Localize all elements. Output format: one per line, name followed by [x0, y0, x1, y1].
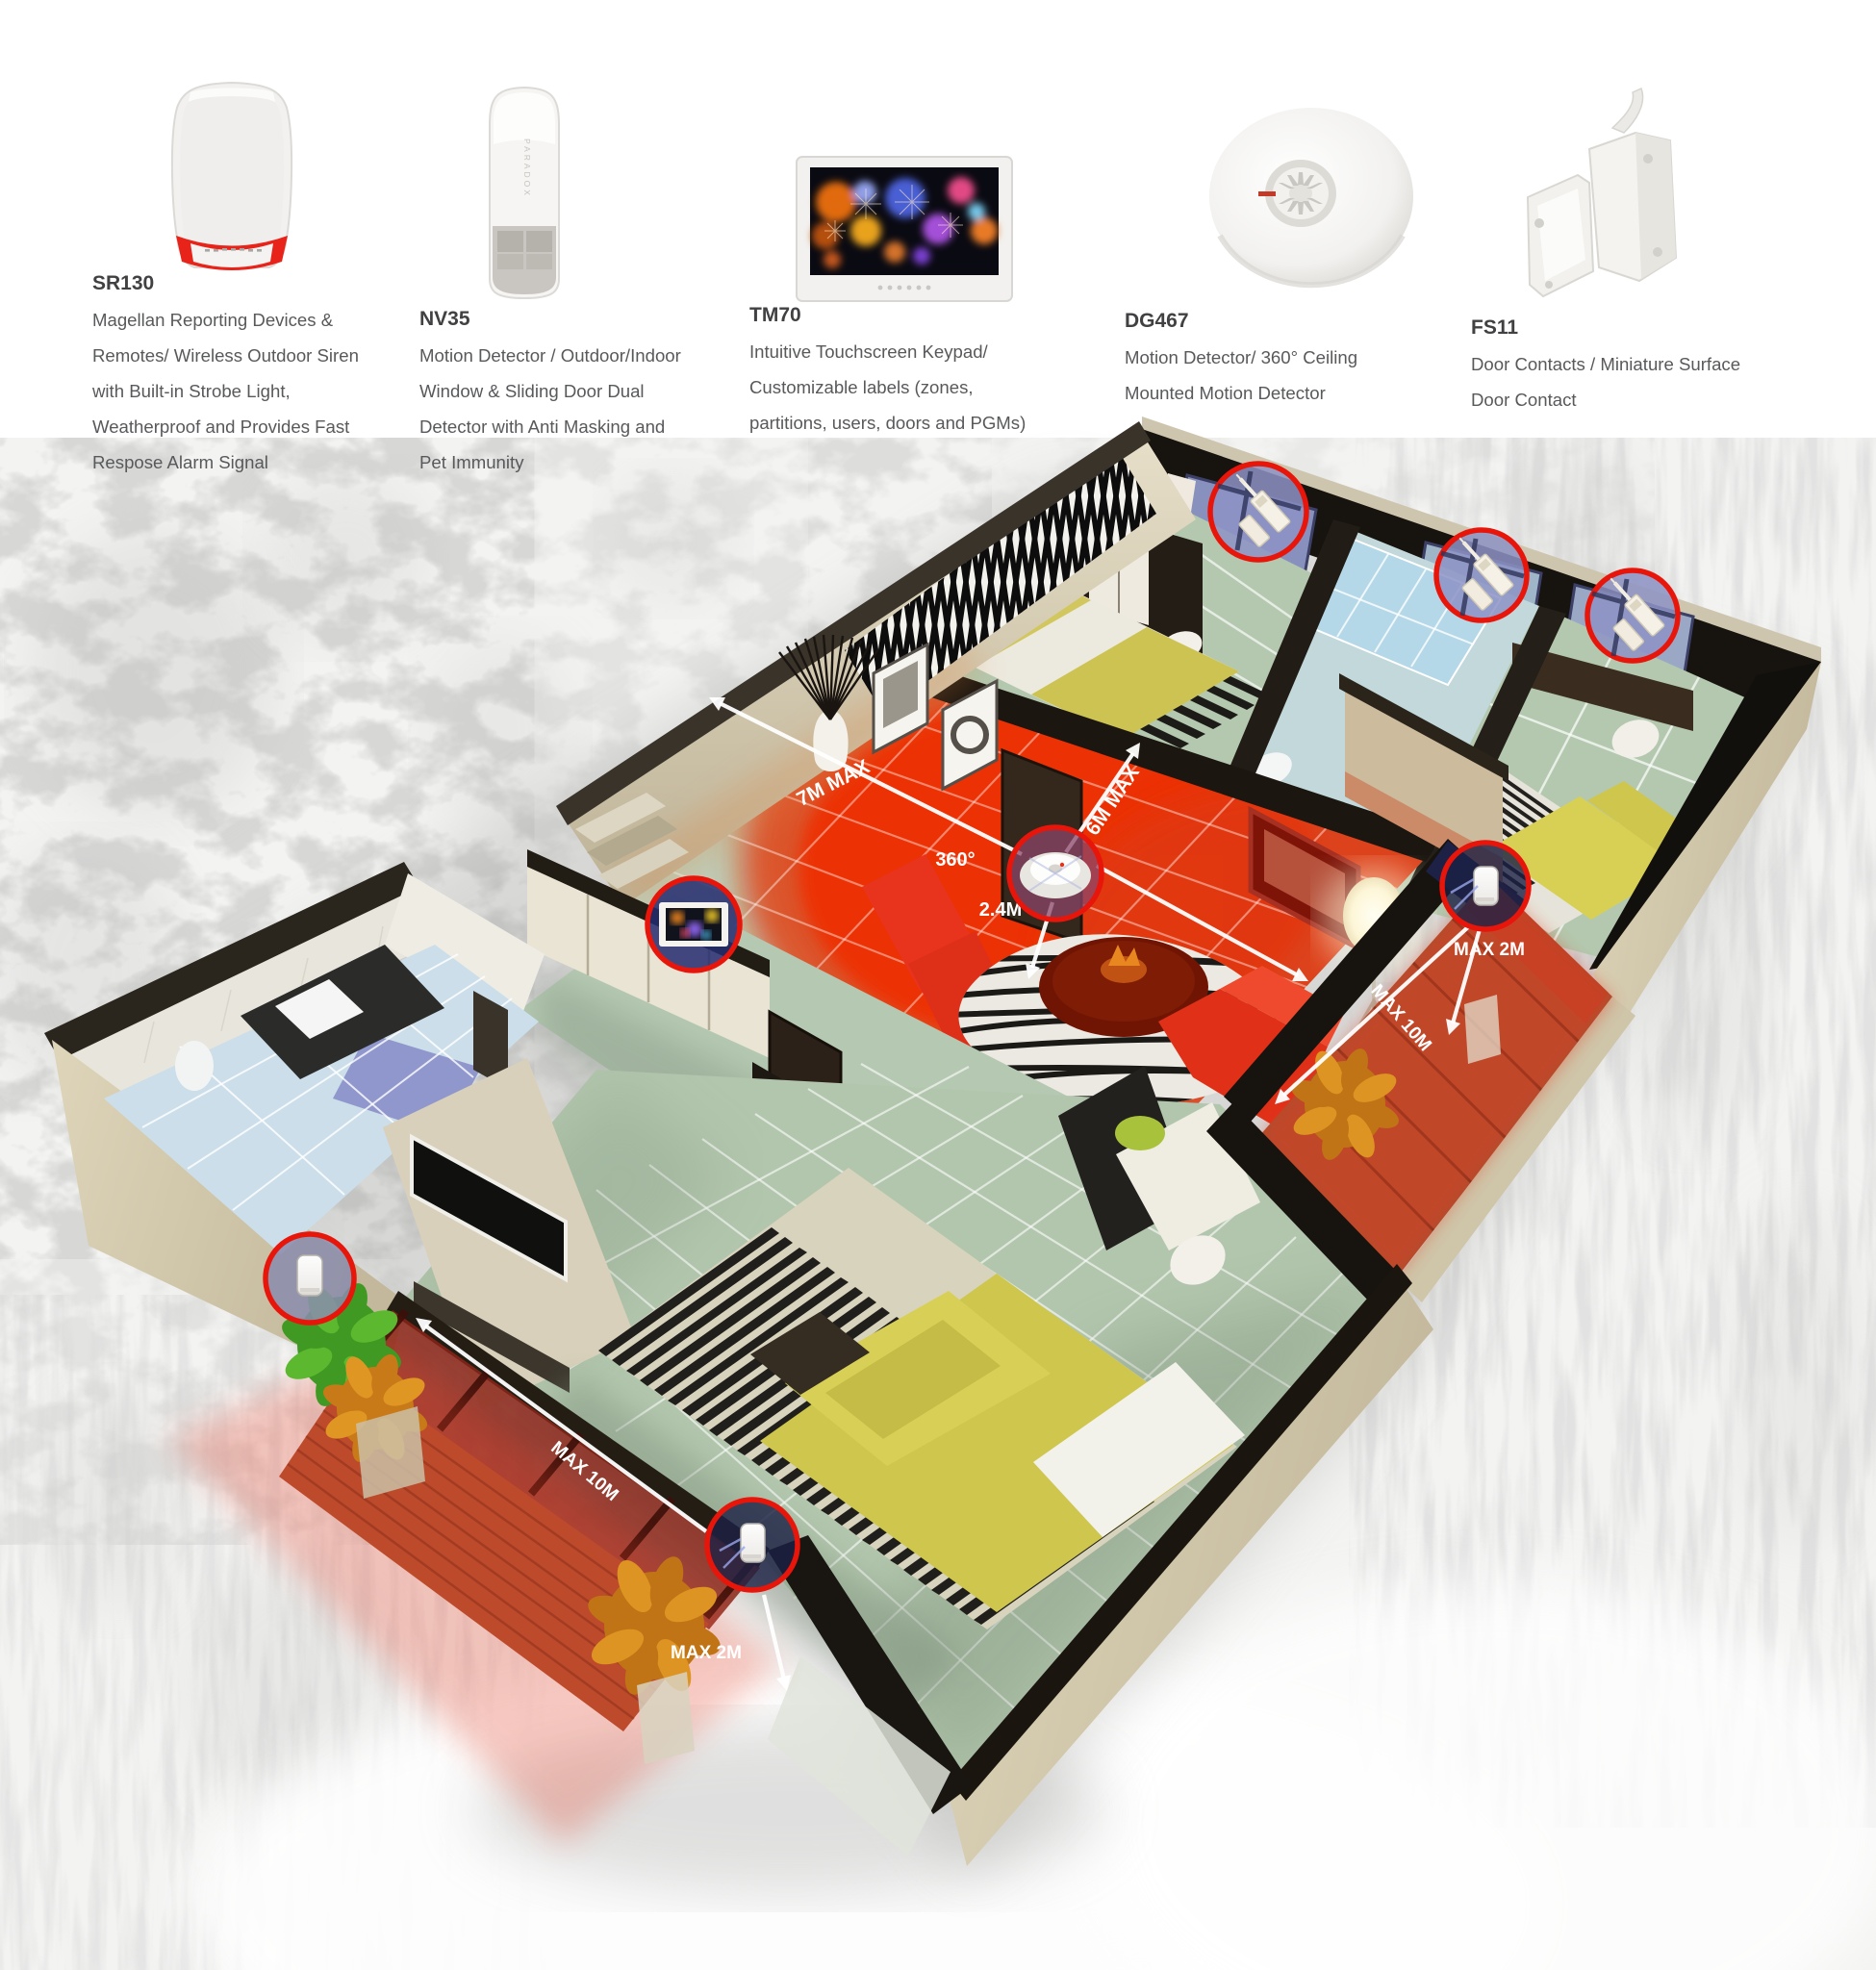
svg-text:Door Contacts / Miniature Surf: Door Contacts / Miniature Surface: [1471, 354, 1740, 374]
svg-text:2.4M: 2.4M: [979, 899, 1022, 921]
svg-text:Motion Detector/ 360° Ceiling: Motion Detector/ 360° Ceiling: [1125, 347, 1357, 367]
svg-text:Pet Immunity: Pet Immunity: [419, 452, 524, 472]
svg-text:Intuitive Touchscreen Keypad/: Intuitive Touchscreen Keypad/: [749, 341, 989, 362]
svg-text:NV35: NV35: [419, 308, 470, 330]
svg-text:Mounted Motion Detector: Mounted Motion Detector: [1125, 383, 1326, 403]
svg-text:Remotes/ Wireless Outdoor Sire: Remotes/ Wireless Outdoor Siren: [92, 345, 359, 366]
svg-text:Customizable labels (zones,: Customizable labels (zones,: [749, 377, 974, 397]
svg-text:Detector with Anti Masking and: Detector with Anti Masking and: [419, 417, 665, 437]
svg-text:Window & Sliding Door Dual: Window & Sliding Door Dual: [419, 381, 645, 401]
svg-text:with Built-in Strobe Light,: with Built-in Strobe Light,: [91, 381, 291, 401]
svg-text:360°: 360°: [935, 849, 975, 871]
svg-text:Weatherproof and Provides Fast: Weatherproof and Provides Fast: [92, 417, 350, 437]
svg-text:PARADOX: PARADOX: [522, 139, 532, 198]
svg-text:Door Contact: Door Contact: [1471, 390, 1577, 410]
svg-text:Motion Detector / Outdoor/Indo: Motion Detector / Outdoor/Indoor: [419, 345, 681, 366]
svg-text:TM70: TM70: [749, 304, 801, 326]
svg-text:MAX 2M: MAX 2M: [671, 1643, 742, 1663]
svg-text:SR130: SR130: [92, 272, 154, 294]
svg-text:MAX 2M: MAX 2M: [1454, 940, 1525, 960]
svg-text:partitions, users, doors and P: partitions, users, doors and PGMs): [749, 413, 1026, 433]
svg-text:DG467: DG467: [1125, 310, 1189, 332]
svg-text:Respose Alarm Signal: Respose Alarm Signal: [92, 452, 268, 472]
svg-text:Magellan Reporting Devices &: Magellan Reporting Devices &: [92, 310, 334, 330]
svg-text:FS11: FS11: [1471, 316, 1518, 339]
